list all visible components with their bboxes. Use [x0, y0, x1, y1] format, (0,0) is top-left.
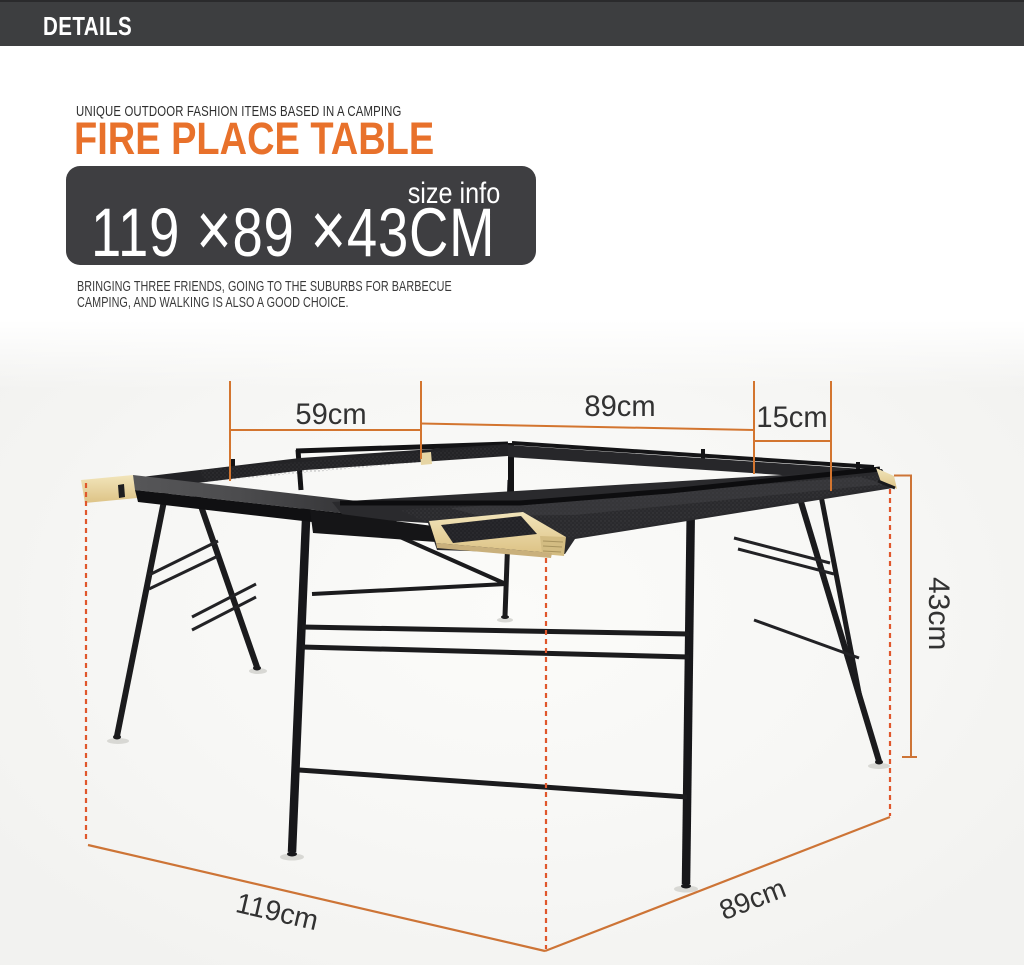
svg-text:15cm: 15cm — [756, 401, 827, 434]
svg-text:43cm: 43cm — [922, 577, 955, 650]
svg-text:119cm: 119cm — [233, 887, 321, 937]
svg-text:89cm: 89cm — [584, 390, 655, 423]
svg-text:59cm: 59cm — [295, 398, 366, 431]
